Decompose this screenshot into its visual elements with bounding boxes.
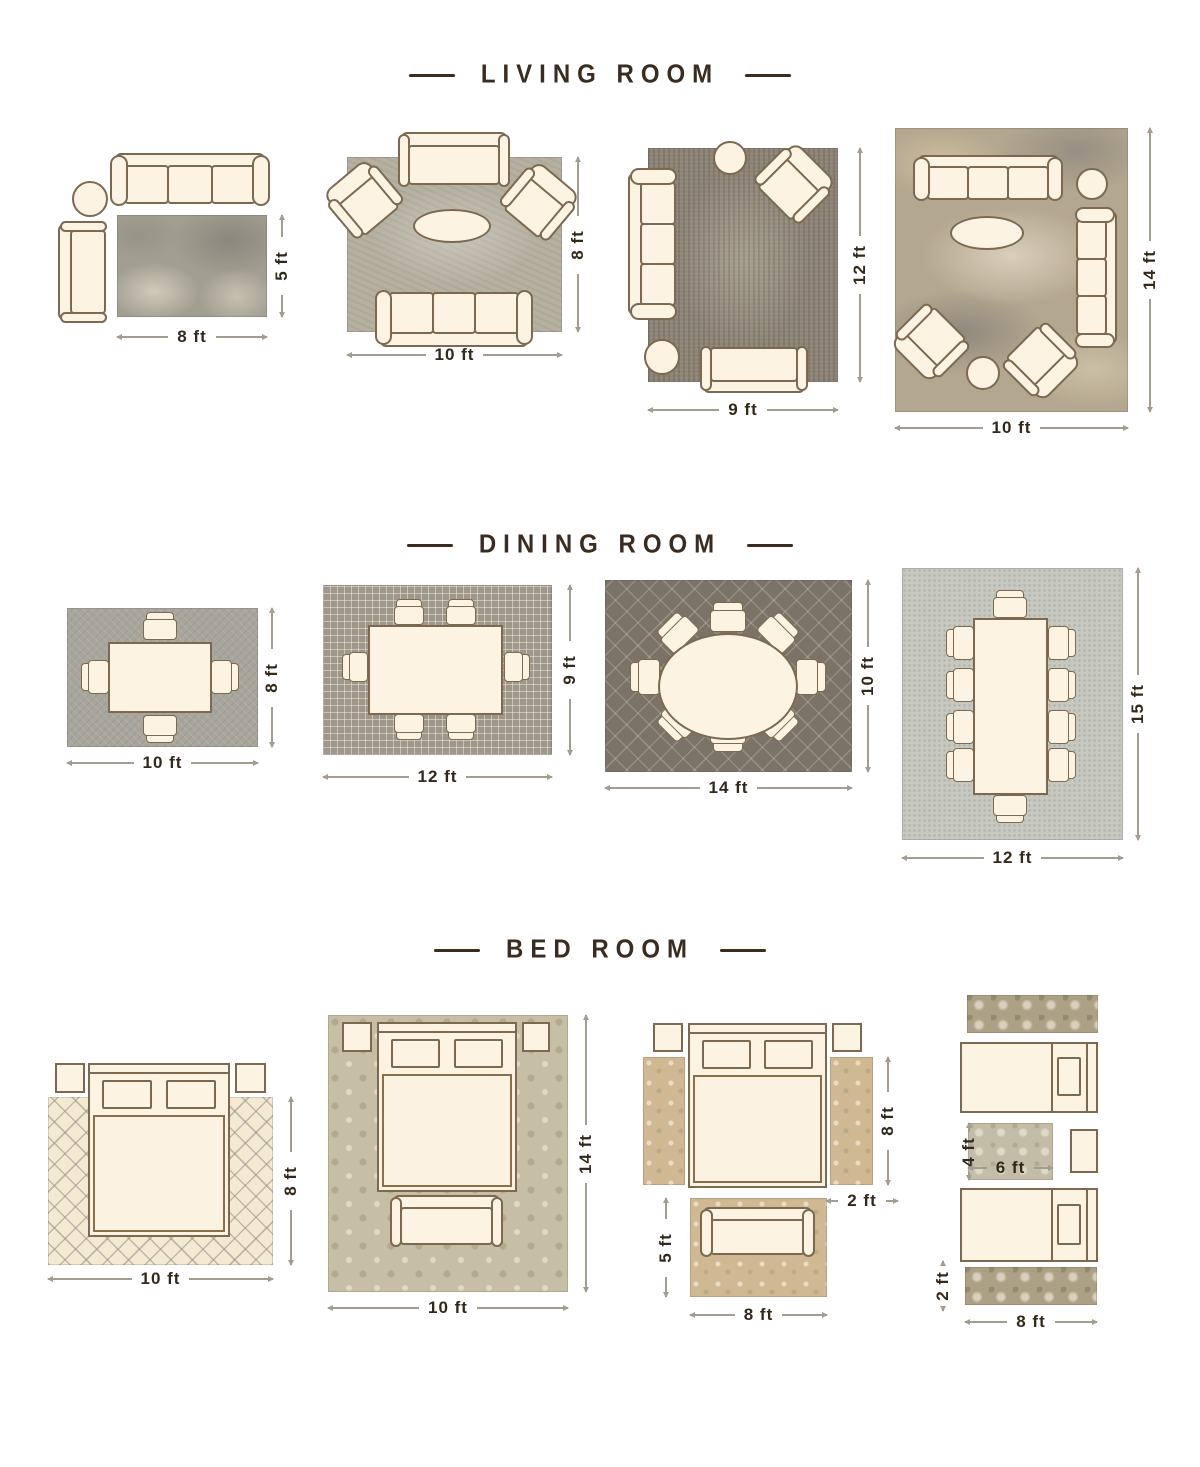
- pillow: [1057, 1204, 1081, 1245]
- width-dimension: 8 ft: [965, 1311, 1097, 1333]
- mid-rug-width-dimension-label: 6 ft: [987, 1158, 1035, 1178]
- bed-divider: [1051, 1043, 1053, 1112]
- twin-bed-icon: [960, 1188, 1098, 1262]
- width-dimension-label: 8 ft: [1007, 1312, 1055, 1332]
- runner-rug: [965, 1267, 1097, 1305]
- runner-height-dimension: 2 ft: [932, 1261, 954, 1311]
- headboard: [1086, 1189, 1088, 1261]
- bedroom-layout-twin-runners: 4 ft 6 ft 2 ft 8 ft: [0, 0, 1200, 1467]
- pillow: [1057, 1057, 1081, 1096]
- headboard: [1086, 1043, 1088, 1112]
- mid-rug-width-dimension: 6 ft: [968, 1157, 1053, 1179]
- runner-height-dimension-label: 2 ft: [932, 1266, 954, 1306]
- bed-divider: [1051, 1189, 1053, 1261]
- twin-bed-icon: [960, 1042, 1098, 1113]
- nightstand-icon: [1070, 1129, 1098, 1173]
- runner-rug: [967, 995, 1098, 1033]
- rug-size-guide: LIVING ROOM 8 ft 5 ft: [0, 0, 1200, 1467]
